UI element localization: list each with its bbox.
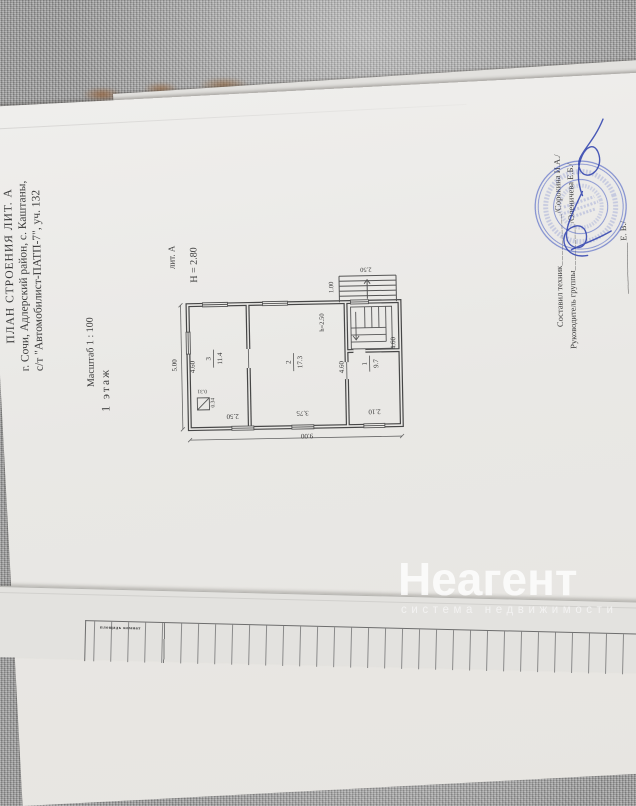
svg-text:17.3: 17.3 — [296, 355, 304, 368]
dim-room1-width: 2.10 — [368, 407, 381, 415]
document-content: ПЛАН СТРОЕНИЯ ЛИТ. А г. Сочи, Адлерский … — [0, 0, 636, 642]
room3-label: 3 11.4 — [204, 349, 224, 367]
scale-label: Масштаб 1 : 100 — [85, 317, 97, 387]
dim-porch-width: 2.50 — [360, 266, 372, 273]
stair-clearance-label: h=2.50 — [319, 313, 326, 331]
dim-stove-h: 0.31 — [197, 388, 207, 394]
bottom-table-cell-text: площадь комнат — [100, 624, 141, 630]
watermark-tagline: система недвижимости — [401, 605, 618, 617]
building-height-label: Н = 2.80 — [188, 247, 200, 283]
svg-text:1: 1 — [361, 361, 369, 365]
dimension-lines — [178, 299, 404, 442]
watermark: Неагент система недвижимости — [398, 556, 618, 617]
dim-room3-width: 2.50 — [226, 412, 239, 420]
address-line: г. Сочи, Адлерский район, с. Каштаны, — [16, 181, 32, 372]
dim-room3-depth: 4.60 — [189, 360, 197, 373]
dim-room2-width: 3.75 — [296, 409, 309, 417]
room1-label: 1 9.7 — [361, 355, 381, 371]
ink-signatures — [511, 98, 636, 290]
plan-title: ПЛАН СТРОЕНИЯ ЛИТ. А — [2, 188, 17, 344]
photo-of-floorplan-document: { "watermark": { "brand": "Неагент", "ta… — [0, 0, 636, 636]
dim-total-width: 9.00 — [300, 432, 313, 440]
watermark-brand: Неагент — [398, 556, 618, 602]
parcel-line: с/т "Автомобилист-ПАТП-7", уч. 132 — [30, 190, 45, 371]
dim-room1-depth: 4.60 — [389, 337, 397, 350]
room2-label: 2 17.3 — [284, 353, 304, 371]
interior-stair — [351, 306, 393, 349]
dim-porch-depth: 1.00 — [328, 282, 335, 294]
dim-stove-w: 0.34 — [210, 398, 216, 408]
floor-label: 1 этаж — [100, 368, 113, 412]
svg-text:3: 3 — [204, 356, 212, 360]
stove-symbol — [197, 398, 209, 410]
floorplan-drawing: лит. А Н = 2.80 5.00 9.00 4.60 2.50 3.75… — [153, 213, 417, 453]
svg-text:2: 2 — [285, 360, 293, 364]
porch-stair — [339, 275, 396, 302]
svg-text:11.4: 11.4 — [216, 352, 224, 365]
dim-room2-depth: 4.60 — [338, 361, 346, 374]
dim-total-depth: 5.00 — [171, 359, 179, 372]
svg-text:9.7: 9.7 — [372, 359, 380, 368]
litera-label: лит. А — [166, 245, 176, 269]
